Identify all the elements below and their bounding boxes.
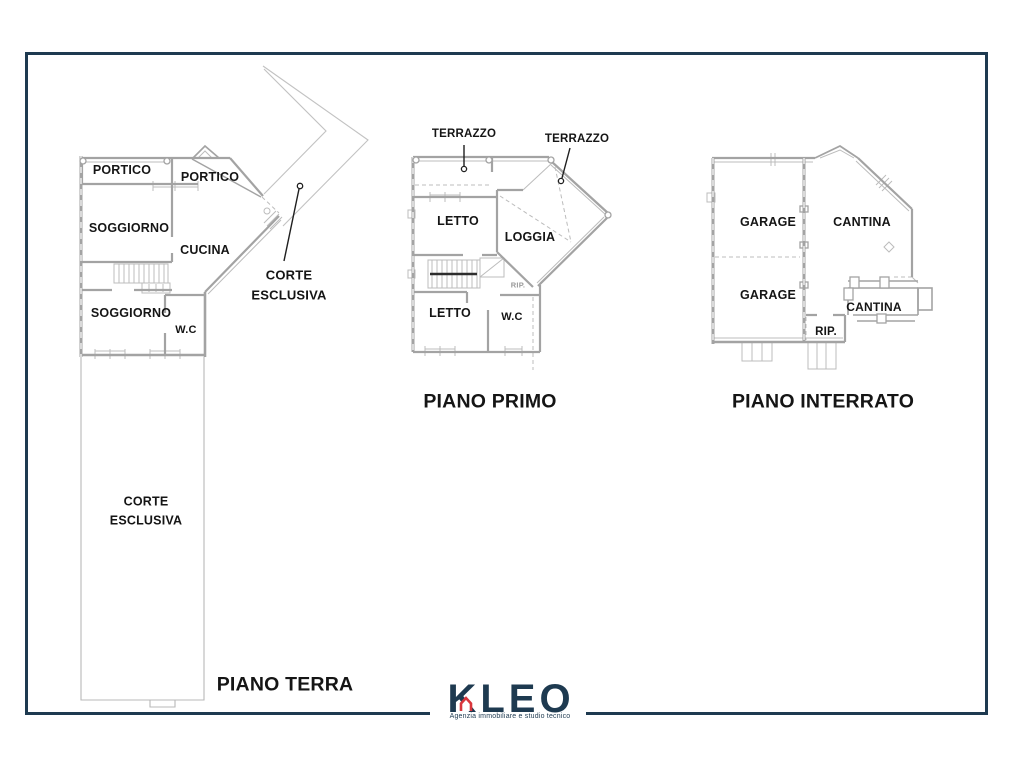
kleo-logo-house-icon — [459, 696, 473, 712]
corte-strip-outline — [81, 357, 204, 707]
room-label-cantina-small: CANTINA — [846, 300, 901, 314]
floorplan-sheet: PORTICO PORTICO SOGGIORNO CUCINA SOGGIOR… — [0, 0, 1024, 768]
room-label-rip-interrato: RIP. — [815, 326, 837, 338]
room-label-letto-lower: LETTO — [429, 306, 471, 320]
interrato-hatched-walls — [713, 158, 804, 344]
terra-dashed — [262, 197, 279, 213]
room-label-portico-top: PORTICO — [93, 163, 151, 177]
piano-primo-drawing — [405, 125, 620, 375]
room-label-cucina: CUCINA — [180, 243, 230, 257]
corte-callout-line1: CORTE — [251, 266, 326, 286]
kleo-logo-tagline: Agenzia immobiliare e studio tecnico — [436, 713, 584, 720]
room-label-terrazzo-right: TERRAZZO — [545, 133, 609, 145]
corte-esclusiva-strip-label: CORTE ESCLUSIVA — [110, 492, 182, 530]
corte-strip-line1: CORTE — [110, 492, 182, 511]
plan-title-piano-interrato: PIANO INTERRATO — [732, 391, 914, 414]
piano-terra-drawing — [58, 55, 398, 715]
room-label-soggiorno-lower: SOGGIORNO — [91, 306, 171, 320]
room-label-garage-upper: GARAGE — [740, 215, 796, 229]
plan-title-piano-primo: PIANO PRIMO — [423, 391, 556, 414]
interrato-thin-lines — [707, 150, 918, 369]
piano-interrato-drawing — [705, 138, 945, 378]
room-label-letto-upper: LETTO — [437, 214, 479, 228]
room-label-cantina-main: CANTINA — [833, 215, 891, 229]
room-label-wc-primo: W.C — [501, 311, 522, 323]
room-label-portico-side: PORTICO — [181, 170, 239, 184]
room-label-loggia: LOGGIA — [505, 230, 556, 244]
room-label-rip-primo: RIP. — [511, 281, 525, 290]
corte-strip-line2: ESCLUSIVA — [110, 511, 182, 530]
corte-esclusiva-callout: CORTE ESCLUSIVA — [251, 266, 326, 305]
plan-title-piano-terra: PIANO TERRA — [217, 674, 354, 697]
room-label-wc-terra: W.C — [175, 324, 196, 336]
corte-callout-line2: ESCLUSIVA — [251, 285, 326, 305]
corte-boundary-lines — [263, 66, 368, 226]
room-label-garage-lower: GARAGE — [740, 288, 796, 302]
room-label-soggiorno-upper: SOGGIORNO — [89, 221, 169, 235]
room-label-terrazzo-left: TERRAZZO — [432, 128, 496, 140]
